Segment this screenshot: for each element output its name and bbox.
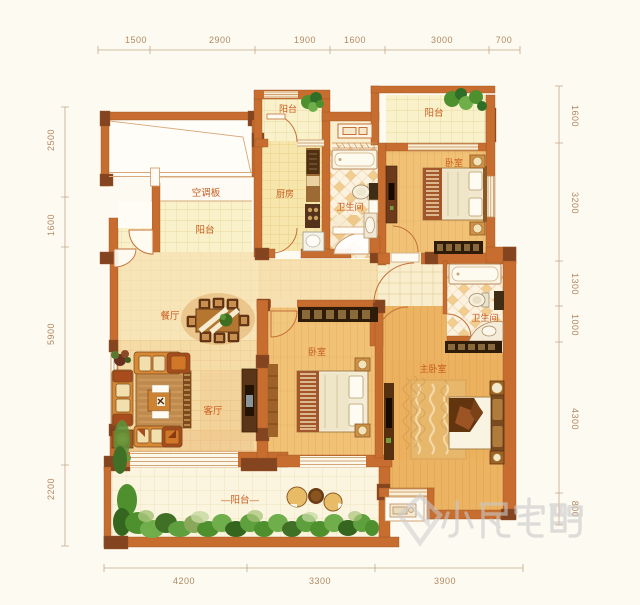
svg-text:卧室: 卧室	[445, 157, 463, 168]
svg-text:1300: 1300	[570, 273, 580, 295]
svg-text:1000: 1000	[570, 314, 580, 336]
svg-text:空调板: 空调板	[192, 187, 221, 199]
svg-text:卫生间: 卫生间	[471, 312, 498, 323]
svg-text:餐厅: 餐厅	[160, 310, 180, 322]
svg-text:1500: 1500	[125, 35, 147, 45]
svg-text:2500: 2500	[46, 129, 56, 151]
svg-text:2900: 2900	[209, 35, 231, 45]
svg-text:卧室: 卧室	[308, 346, 326, 357]
svg-text:主卧室: 主卧室	[419, 363, 446, 374]
svg-text:1600: 1600	[344, 35, 366, 45]
svg-text:2200: 2200	[46, 478, 56, 500]
svg-text:1900: 1900	[294, 35, 316, 45]
svg-text:阳台: 阳台	[424, 107, 443, 119]
svg-text:700: 700	[496, 35, 513, 45]
svg-text:—阳台—: —阳台—	[221, 494, 260, 506]
svg-text:3900: 3900	[434, 576, 456, 586]
svg-text:客厅: 客厅	[203, 405, 223, 417]
svg-text:厨房: 厨房	[276, 188, 294, 199]
svg-text:1600: 1600	[570, 105, 580, 127]
svg-text:4300: 4300	[570, 408, 580, 430]
svg-text:3300: 3300	[309, 576, 331, 586]
svg-text:阳台: 阳台	[195, 224, 214, 236]
svg-text:阳台: 阳台	[279, 103, 297, 114]
svg-text:5900: 5900	[46, 323, 56, 345]
svg-text:3200: 3200	[570, 192, 580, 214]
svg-text:3000: 3000	[431, 35, 453, 45]
svg-text:1600: 1600	[46, 214, 56, 236]
svg-text:4200: 4200	[173, 576, 195, 586]
svg-text:卫生间: 卫生间	[336, 201, 363, 212]
